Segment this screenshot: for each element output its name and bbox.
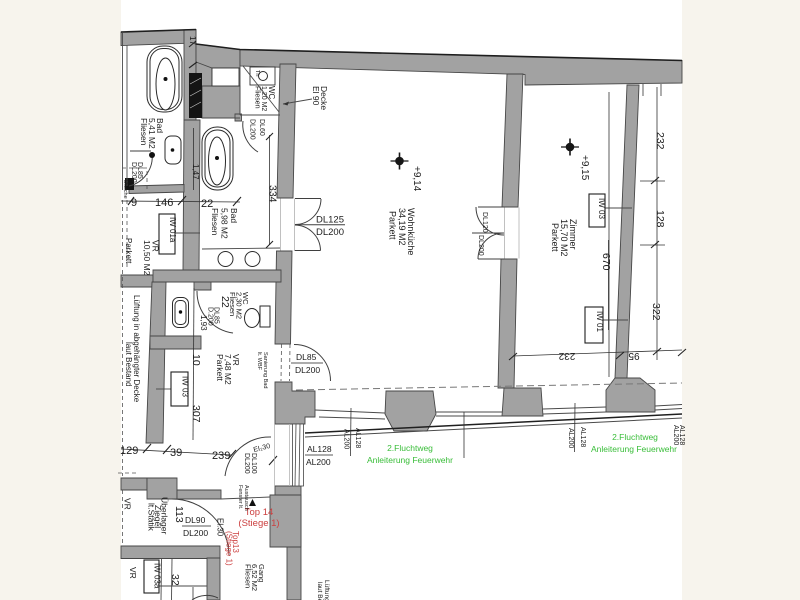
svg-text:D.200: D.200 — [207, 307, 214, 326]
svg-text:lt. WBF: lt. WBF — [256, 352, 262, 371]
svg-text:Fliesen: Fliesen — [139, 118, 149, 146]
svg-text:Parkett: Parkett — [124, 238, 133, 264]
svg-text:+9,15: +9,15 — [579, 155, 590, 181]
svg-text:2.Fluchtweg: 2.Fluchtweg — [612, 432, 658, 442]
svg-text:IW 01a: IW 01a — [168, 217, 177, 243]
svg-text:22: 22 — [219, 296, 231, 308]
svg-text:39: 39 — [170, 447, 182, 459]
svg-text:IW 03: IW 03 — [597, 198, 606, 219]
svg-text:El.30: El.30 — [216, 518, 225, 537]
svg-text:146: 146 — [155, 197, 173, 209]
svg-text:laut Bestand: laut Bestand — [316, 582, 323, 600]
svg-text:DL125: DL125 — [316, 215, 344, 226]
svg-text:32: 32 — [169, 574, 181, 586]
svg-text:95: 95 — [628, 350, 640, 361]
svg-text:Anleiterung Feuerwehr: Anleiterung Feuerwehr — [591, 444, 677, 454]
svg-text:1,47: 1,47 — [191, 164, 200, 180]
svg-text:AL128: AL128 — [354, 428, 361, 448]
svg-text:El 90: El 90 — [311, 86, 321, 106]
svg-text:Fliesen: Fliesen — [254, 86, 261, 109]
svg-text:IW 01: IW 01 — [595, 311, 604, 332]
svg-text:(Stiege 1): (Stiege 1) — [238, 518, 279, 529]
svg-text:322: 322 — [650, 303, 662, 321]
svg-text:Lüftung: Lüftung — [323, 580, 330, 600]
svg-text:2.Fluchtweg: 2.Fluchtweg — [387, 443, 433, 453]
svg-text:AL200: AL200 — [567, 428, 574, 448]
svg-text:AL128: AL128 — [579, 427, 586, 447]
svg-text:10: 10 — [190, 354, 202, 366]
svg-text:17: 17 — [188, 36, 197, 45]
svg-text:DL200: DL200 — [249, 119, 256, 140]
svg-text:DL200: DL200 — [295, 365, 320, 375]
svg-text:Dusche: Dusche — [122, 180, 128, 199]
svg-text:DL90: DL90 — [185, 515, 206, 525]
svg-text:DL200: DL200 — [243, 453, 250, 474]
svg-text:+9,14: +9,14 — [411, 166, 422, 192]
svg-text:113: 113 — [173, 506, 185, 523]
svg-text:AL128: AL128 — [307, 444, 332, 454]
svg-text:Parkett: Parkett — [215, 354, 225, 382]
svg-text:Fliesen: Fliesen — [210, 208, 220, 236]
svg-text:DL200: DL200 — [130, 162, 137, 183]
svg-text:Fliesen: Fliesen — [244, 564, 253, 588]
svg-text:DL200: DL200 — [183, 528, 208, 538]
svg-text:laut Bestand: laut Bestand — [124, 342, 133, 386]
svg-text:Anleiterung Feuerwehr: Anleiterung Feuerwehr — [367, 455, 453, 465]
svg-text:34,19 M2: 34,19 M2 — [397, 208, 407, 246]
svg-text:Th: Th — [254, 70, 260, 76]
svg-text:Parkett: Parkett — [388, 211, 398, 240]
svg-text:232: 232 — [558, 350, 575, 361]
svg-text:239: 239 — [212, 450, 230, 462]
svg-text:DL200: DL200 — [477, 235, 484, 256]
svg-text:9: 9 — [131, 197, 137, 209]
svg-text:AL200: AL200 — [672, 425, 679, 445]
svg-text:IW 03: IW 03 — [181, 376, 190, 397]
svg-text:WC: WC — [267, 86, 276, 100]
svg-text:AL200: AL200 — [306, 457, 331, 467]
svg-text:DL85: DL85 — [296, 352, 317, 362]
svg-text:128: 128 — [654, 210, 666, 228]
svg-text:Parkett: Parkett — [550, 223, 560, 252]
svg-text:VR: VR — [123, 498, 133, 510]
svg-text:DL200: DL200 — [316, 227, 344, 238]
svg-text:Fenster lt.: Fenster lt. — [237, 485, 243, 510]
svg-text:AL200: AL200 — [343, 429, 350, 449]
svg-text:lt.Statik: lt.Statik — [147, 503, 157, 532]
svg-text:670: 670 — [600, 253, 612, 271]
svg-text:DL100: DL100 — [250, 453, 257, 474]
svg-text:Bad: Bad — [229, 208, 239, 223]
svg-text:5,98 M2: 5,98 M2 — [220, 208, 230, 239]
svg-text:DL60: DL60 — [258, 119, 265, 136]
svg-text:DL120: DL120 — [481, 212, 488, 233]
svg-text:VR: VR — [128, 567, 138, 579]
svg-text:10,50 M2: 10,50 M2 — [142, 240, 152, 276]
svg-text:334: 334 — [267, 185, 279, 203]
svg-text:IW 03a: IW 03a — [153, 563, 162, 589]
svg-text:(Stiege 1): (Stiege 1) — [225, 531, 234, 566]
svg-text:232: 232 — [654, 132, 666, 150]
svg-text:307: 307 — [190, 405, 202, 423]
svg-text:129: 129 — [120, 445, 138, 457]
